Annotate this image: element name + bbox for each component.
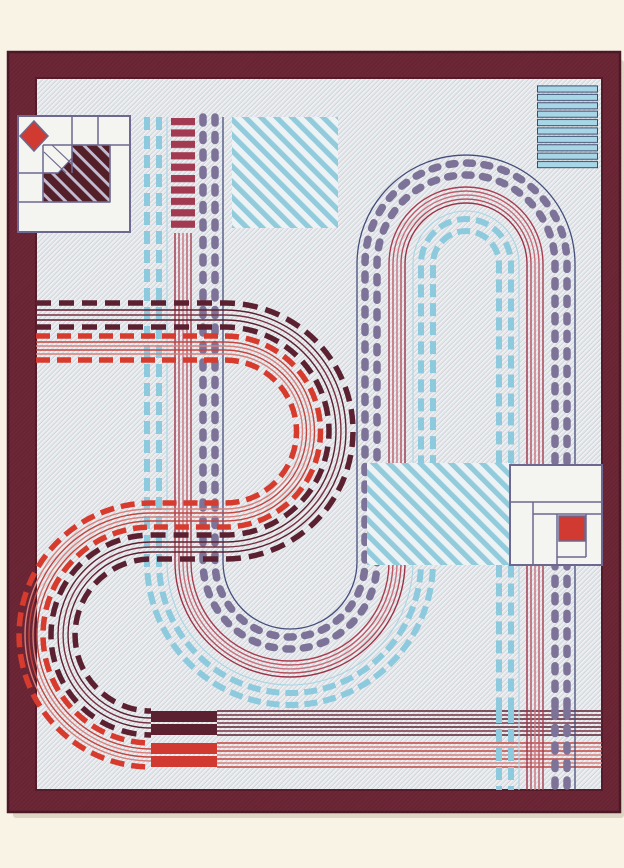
ladder-crossing — [171, 117, 195, 231]
red-square-icon — [559, 516, 585, 541]
red-block — [151, 743, 217, 754]
diagonal-stripe-band-right — [367, 463, 512, 565]
rug-photo — [0, 0, 624, 868]
red-block — [151, 756, 217, 767]
dark-block — [151, 711, 217, 722]
rug-illustration — [0, 0, 624, 868]
dark-block — [151, 724, 217, 735]
diagonal-stripe-square-top — [232, 117, 338, 228]
motif-background — [510, 465, 602, 565]
log-cabin-motif-right — [510, 465, 602, 565]
stripe-block-top-right — [537, 85, 598, 169]
corner-motif-top-left — [18, 116, 130, 232]
